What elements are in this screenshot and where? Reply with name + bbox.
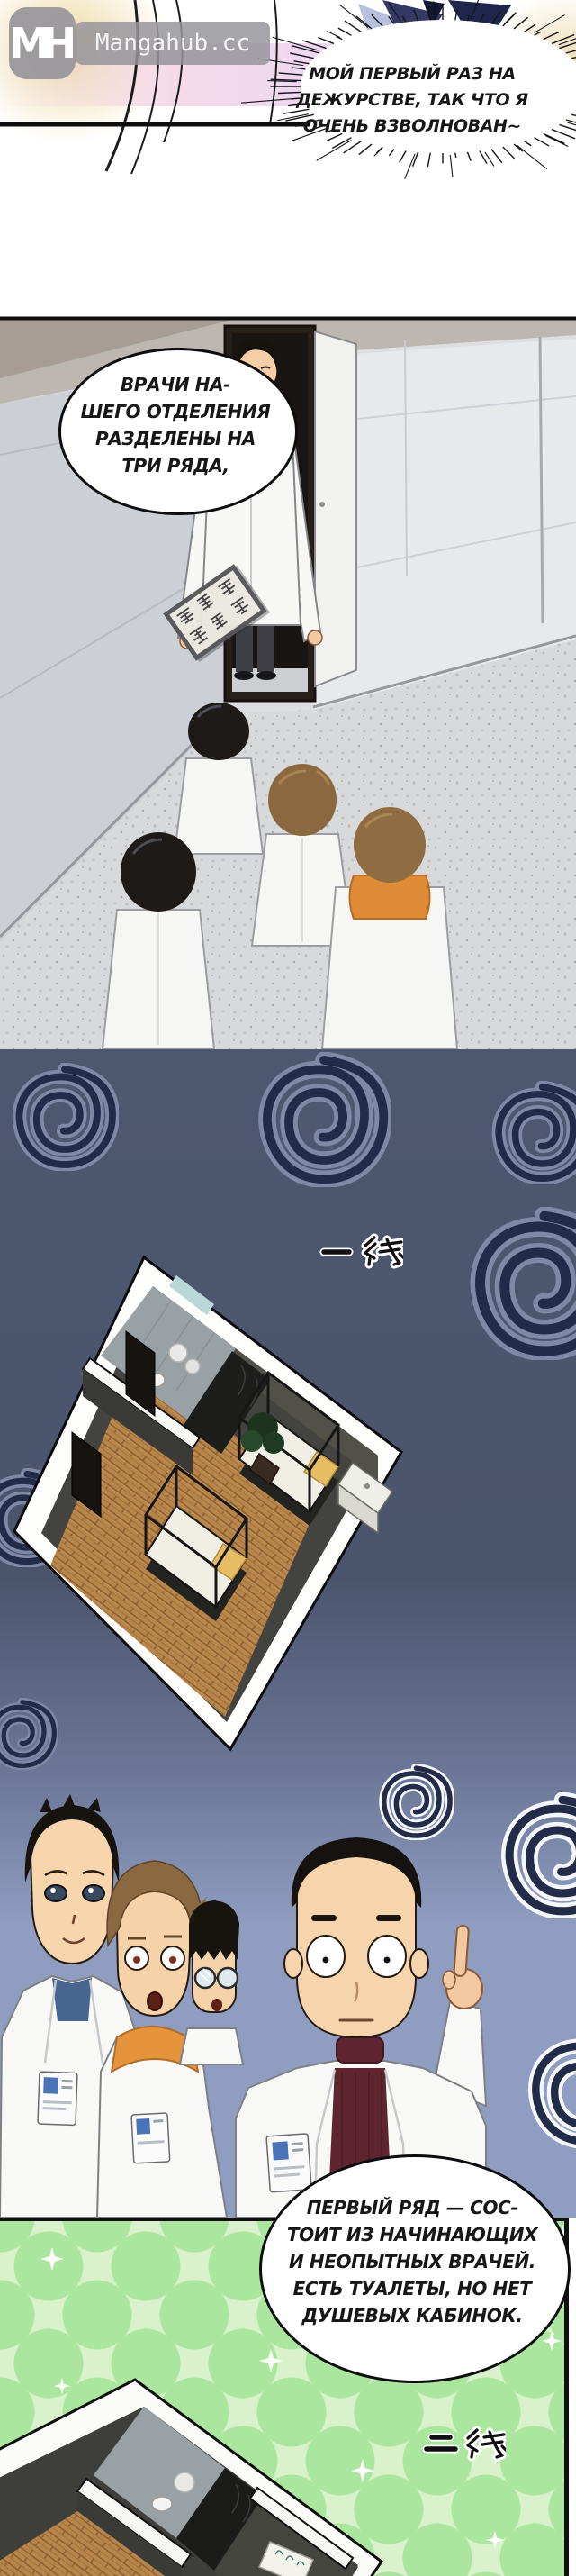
- speech-bubble-rows-intro-text: ВРАЧИ НА- ШЕГО ОТДЕЛЕНИЯ РАЗДЕЛЕНЫ НА ТР…: [58, 371, 292, 479]
- caption-second-line: 二 线: [419, 2423, 506, 2463]
- bubble-line: ОЧЕНЬ ВЗВОЛНОВАН~: [259, 113, 565, 140]
- bubble-line: ЕСТЬ ТУАЛЕТЫ, НО НЕТ: [259, 2275, 565, 2302]
- panel-first-line: 一 线: [0, 1049, 576, 2218]
- site-watermark: Mangahub.cc: [76, 22, 270, 65]
- bubble-line: ТОИТ ИЗ НАЧИНАЮЩИХ: [259, 2221, 565, 2248]
- bubble-line: РАЗДЕЛЕНЫ НА: [58, 425, 292, 452]
- manga-page-container: МОЙ ПЕРВЫЙ РАЗ НА ДЕЖУРСТВЕ, ТАК ЧТО Я О…: [0, 0, 576, 2576]
- doctor-glasses: [180, 1900, 243, 2064]
- id-badge: [266, 2134, 311, 2192]
- bubble-line: МОЙ ПЕРВЫЙ РАЗ НА: [259, 61, 565, 87]
- site-logo-icon: MH: [9, 7, 76, 79]
- site-logo-text: MH: [9, 19, 76, 68]
- sparkle-decoration: [542, 2331, 562, 2351]
- speech-bubble-first-row-text: ПЕРВЫЙ РЯД — СОС- ТОИТ ИЗ НАЧИНАЮЩИХ И Н…: [259, 2194, 565, 2329]
- site-watermark-text: Mangahub.cc: [95, 30, 250, 57]
- first-line-room-illustration: [0, 1225, 576, 1765]
- toilet: [152, 2497, 172, 2511]
- bubble-line: ШЕГО ОТДЕЛЕНИЯ: [58, 398, 292, 425]
- bubble-line: ПЕРВЫЙ РЯД — СОС-: [259, 2194, 565, 2221]
- bubble-line: ВРАЧИ НА-: [58, 371, 292, 398]
- id-badge: [131, 2113, 170, 2163]
- doctors-group-illustration: [0, 1756, 576, 2218]
- hallway-illustration: [0, 216, 576, 1049]
- bubble-line: ТРИ РЯДА,: [58, 452, 292, 479]
- bubble-line: ДЕЖУРСТВЕ, ТАК ЧТО Я: [259, 87, 565, 113]
- spiral-doodle: [256, 1052, 391, 1187]
- caption-first-line: 一 线: [317, 1230, 403, 1270]
- speech-bubble-excited: МОЙ ПЕРВЫЙ РАЗ НА ДЕЖУРСТВЕ, ТАК ЧТО Я О…: [259, 61, 565, 140]
- bubble-line: И НЕОПЫТНЫХ ВРАЧЕЙ.: [259, 2248, 565, 2275]
- sparkle-decoration: [40, 2247, 64, 2271]
- spiral-doodle: [11, 1063, 119, 1171]
- second-line-room-illustration: [0, 2369, 576, 2576]
- id-badge: [38, 2072, 77, 2125]
- spiral-doodle: [490, 1081, 576, 1184]
- bubble-line: ДУШЕВЫХ КАБИНОК.: [259, 2302, 565, 2329]
